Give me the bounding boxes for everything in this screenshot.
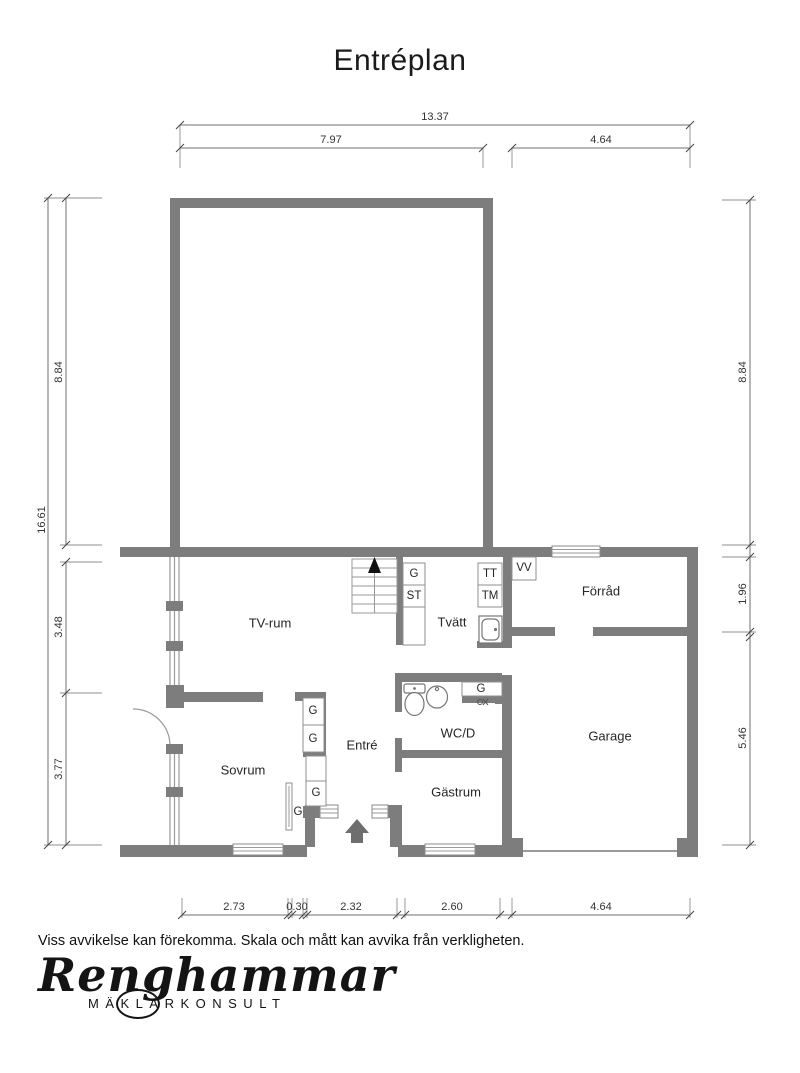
wall-upper-room-top [170, 198, 493, 208]
garage-door-post-left [512, 838, 523, 857]
logo-name: Renghammar [38, 948, 396, 1002]
door-swing-arc [133, 709, 170, 746]
label-g-sovrum-2: G [309, 733, 318, 745]
dim-left-upper: 8.84 [53, 361, 65, 382]
wall-main-top [120, 547, 698, 557]
stairs [352, 557, 397, 613]
label-g-sovrum-1: G [309, 705, 318, 717]
window-entry-right [372, 805, 388, 818]
toilet [404, 684, 425, 716]
entry-niche-left-wall [305, 816, 315, 847]
dim-right-mid: 1.96 [737, 583, 749, 604]
entrance-arrow [345, 819, 369, 843]
wall-main-right [687, 547, 698, 857]
label-vv: VV [516, 562, 531, 574]
dim-bottom-2: 0.30 [286, 901, 307, 913]
floorplan: TV-rum Sovrum Entré Gästrum WC/D Tvätt F… [0, 0, 800, 1073]
garage-door-post-right [677, 838, 698, 857]
room-label-tv-rum: TV-rum [249, 616, 292, 631]
dimension-lines [48, 125, 750, 915]
dim-left-total: 16.61 [36, 506, 48, 534]
disclaimer-text: Viss avvikelse kan förekomma. Skala och … [38, 933, 525, 949]
room-label-entre: Entré [346, 738, 377, 753]
wall-wc-left-lower [395, 738, 402, 772]
dim-right-upper: 8.84 [737, 361, 749, 382]
wall-upper-room-left [170, 198, 180, 557]
floorplan-drawing [0, 0, 800, 1073]
window-forrad [552, 546, 600, 557]
dim-bottom-5: 4.64 [590, 901, 611, 913]
floorplan-page: Entréplan [0, 0, 800, 1073]
room-label-garage: Garage [588, 729, 631, 744]
label-tt: TT [483, 568, 497, 580]
room-label-forrad: Förråd [582, 584, 620, 599]
room-label-tvatt: Tvätt [438, 615, 467, 630]
label-tm: TM [482, 590, 499, 602]
room-label-sovrum: Sovrum [221, 763, 266, 778]
wall-wc-top [395, 673, 502, 682]
dimension-ticks [44, 121, 754, 919]
walls [120, 198, 698, 857]
wall-tvatt-right [503, 557, 512, 648]
window-sovrum [233, 844, 283, 855]
cabinet-empty-entre [306, 756, 326, 781]
dim-left-mid: 3.48 [53, 616, 65, 637]
dim-top-right: 4.64 [590, 134, 611, 146]
extension-lines [44, 125, 756, 918]
wc-sink [427, 686, 448, 708]
dim-right-lower: 5.46 [737, 727, 749, 748]
logo-subtitle: MÄKLARKONSULT [88, 996, 286, 1011]
wall-forrad-garage-right [593, 627, 687, 636]
wall-forrad-garage-left [512, 627, 555, 636]
dim-bottom-3: 2.32 [340, 901, 361, 913]
dim-bottom-4: 2.60 [441, 901, 462, 913]
laundry-sink [479, 616, 502, 643]
wall-wc-gastrum [402, 750, 512, 758]
label-g-thin: G [294, 806, 303, 818]
cabinet-empty-stair [403, 607, 425, 645]
wall-wc-left-upper [395, 673, 402, 712]
label-g-wc: G [477, 683, 486, 695]
wall-tvrum-sovrum [178, 692, 263, 702]
dim-top-total: 13.37 [421, 111, 449, 123]
dim-bottom-1: 2.73 [223, 901, 244, 913]
wall-upper-room-right [483, 198, 493, 557]
label-st: ST [407, 590, 422, 602]
label-g-stair: G [410, 568, 419, 580]
window-entry-left [320, 805, 338, 818]
dim-left-lower: 3.77 [53, 758, 65, 779]
label-g-entre: G [312, 787, 321, 799]
dim-top-left: 7.97 [320, 134, 341, 146]
window-gastrum [425, 844, 475, 855]
room-label-wc: WC/D [441, 726, 476, 741]
room-label-gastrum: Gästrum [431, 785, 481, 800]
entry-niche-right-wall [390, 805, 402, 847]
